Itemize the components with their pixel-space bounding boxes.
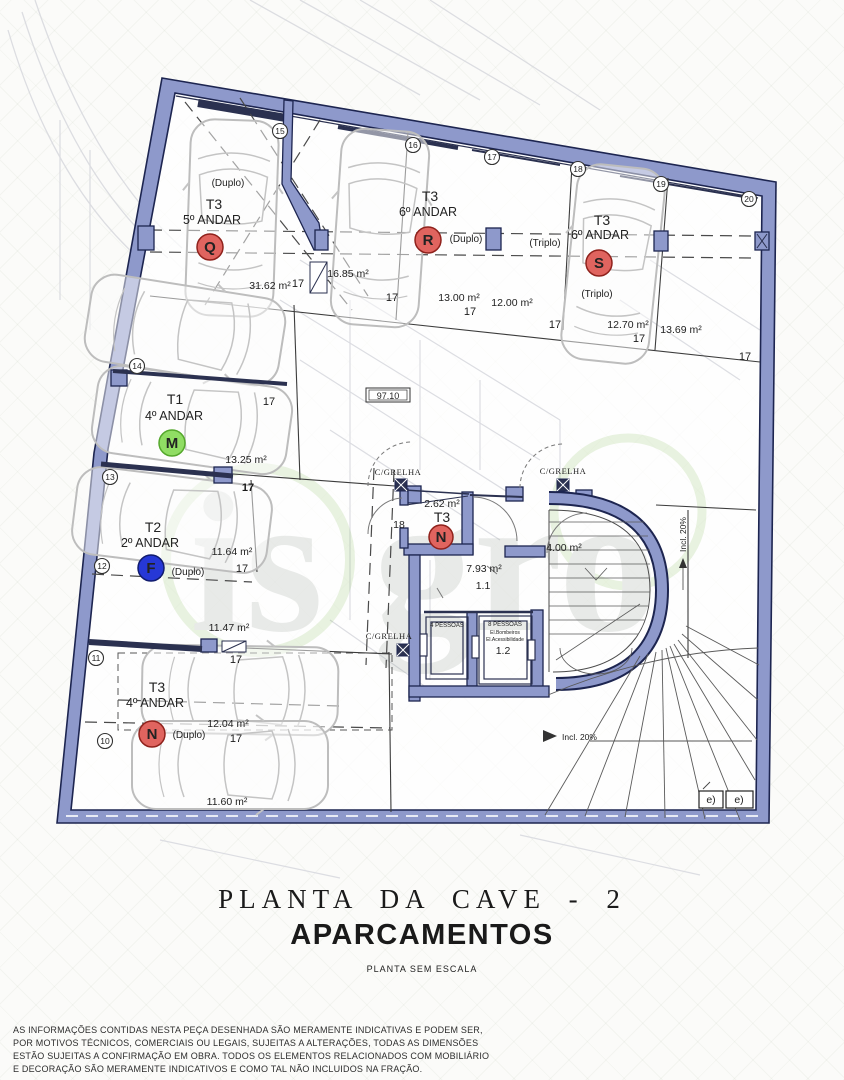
lift-label: 8 PESSOAS — [488, 622, 522, 628]
dim-17: 17 — [230, 733, 242, 745]
spot-mode: (Triplo) — [529, 238, 560, 249]
bubble-number: 13 — [105, 472, 115, 482]
level-value: 97.10 — [377, 391, 400, 401]
spot-mode: (Duplo) — [450, 234, 483, 245]
area-label: 11.47 m² — [209, 622, 250, 634]
title-block: PLANTA DA CAVE - 2 APARCAMENTOS PLANTA S… — [0, 884, 844, 974]
spot-unit: T3 — [422, 188, 439, 204]
bubble-number: 15 — [275, 126, 285, 136]
bubble-number: 19 — [656, 179, 666, 189]
spot-letter: M — [166, 435, 179, 452]
area-label: 13.69 m² — [660, 324, 702, 336]
spot-unit: T3 — [149, 679, 166, 695]
dim-17: 17 — [230, 654, 242, 666]
e-note: e) — [734, 794, 743, 806]
dim-17: 17 — [292, 278, 304, 290]
car-outline — [323, 127, 436, 329]
dim-17: 17 — [236, 563, 248, 575]
spot-letter: R — [423, 232, 434, 249]
area-label: 16.85 m² — [327, 268, 369, 280]
spot-floor: 6º ANDAR — [399, 205, 457, 219]
bubble-number: 12 — [97, 561, 107, 571]
area-label: 31.62 m² — [249, 280, 291, 292]
drawing-title: PLANTA DA CAVE - 2 — [0, 884, 844, 915]
area-label: 4.00 m² — [546, 542, 582, 554]
spot-mode: (Duplo) — [212, 178, 245, 189]
bubble-number: 20 — [744, 194, 754, 204]
dim-17: 17 — [633, 333, 645, 345]
dim-17: 17 — [263, 396, 275, 408]
level-marker: 97.10 — [366, 388, 410, 402]
spot-floor: 2º ANDAR — [121, 536, 179, 550]
room-number: 1.1 — [476, 580, 491, 592]
spot-letter: S — [594, 255, 604, 272]
bubble-number: 16 — [408, 140, 418, 150]
grelha-label: C/GRELHA — [375, 467, 422, 477]
bubble-number: 18 — [573, 164, 583, 174]
lift-label: 4 PESSOAS — [430, 623, 464, 629]
area-label: 13.00 m² — [438, 292, 480, 304]
incline-label: Incl. 20% — [562, 732, 597, 742]
spot-letter: F — [146, 560, 155, 577]
floor-plan: is gro — [0, 0, 844, 880]
dim-17: 17 — [242, 482, 254, 494]
spot-mode: (Triplo) — [581, 289, 612, 300]
lift-label: El.Acessibilidade — [486, 637, 524, 643]
bubble-number: 11 — [92, 653, 101, 663]
scale-note: PLANTA SEM ESCALA — [0, 964, 844, 974]
lift-label: El.Bombeiros — [490, 630, 520, 636]
disclaimer-line: POR MOTIVOS TÉCNICOS, COMERCIAIS OU LEGA… — [13, 1037, 573, 1050]
dim-17: 17 — [386, 292, 398, 304]
spot-mode: (Duplo) — [172, 567, 205, 578]
spot-floor: 4º ANDAR — [126, 696, 184, 710]
incline-label: Incl. 20% — [678, 517, 688, 552]
bubble-number: 17 — [487, 152, 497, 162]
spot-unit: T3 — [594, 212, 611, 228]
area-label: 12.00 m² — [491, 297, 533, 309]
area-label: 13.25 m² — [225, 454, 267, 466]
disclaimer: AS INFORMAÇÕES CONTIDAS NESTA PEÇA DESEN… — [13, 1024, 573, 1076]
spot-unit: T1 — [167, 391, 184, 407]
disclaimer-line: ESTÃO SUJEITAS A CONFIRMAÇÃO EM OBRA. TO… — [13, 1050, 573, 1063]
area-label: 12.70 m² — [607, 319, 649, 331]
spot-letter: Q — [204, 239, 216, 256]
hall-letter: N — [436, 529, 447, 546]
area-label: 11.64 m² — [212, 546, 253, 558]
grelha-label: C/GRELHA — [540, 466, 587, 476]
dim-17: 17 — [739, 351, 751, 363]
door-number: 18 — [393, 519, 405, 531]
spot-floor: 4º ANDAR — [145, 409, 203, 423]
spot-mode: (Duplo) — [173, 730, 206, 741]
bubble-number: 14 — [132, 361, 142, 371]
drawing-sheet: is gro — [0, 0, 844, 1080]
e-note: e) — [706, 794, 715, 806]
dim-17: 17 — [464, 306, 476, 318]
bubble-number: 10 — [100, 736, 110, 746]
spot-floor: 5º ANDAR — [183, 213, 241, 227]
spot-unit: T3 — [206, 196, 223, 212]
spot-floor: 6º ANDAR — [571, 228, 629, 242]
room-number: 1.2 — [496, 645, 511, 657]
hall-unit: T3 — [434, 509, 451, 525]
disclaimer-line: AS INFORMAÇÕES CONTIDAS NESTA PEÇA DESEN… — [13, 1024, 573, 1037]
spot-letter: N — [147, 726, 158, 743]
drawing-subtitle: APARCAMENTOS — [0, 919, 844, 952]
area-label: 12.04 m² — [207, 718, 249, 730]
spot-unit: T2 — [145, 519, 162, 535]
dim-17: 17 — [549, 319, 561, 331]
area-label: 7.93 m² — [466, 563, 502, 575]
disclaimer-line: E DECORAÇÃO SÃO MERAMENTE INDICATIVOS E … — [13, 1063, 573, 1076]
grelha-label: C/GRELHA — [366, 631, 413, 641]
area-label: 11.60 m² — [207, 796, 248, 808]
